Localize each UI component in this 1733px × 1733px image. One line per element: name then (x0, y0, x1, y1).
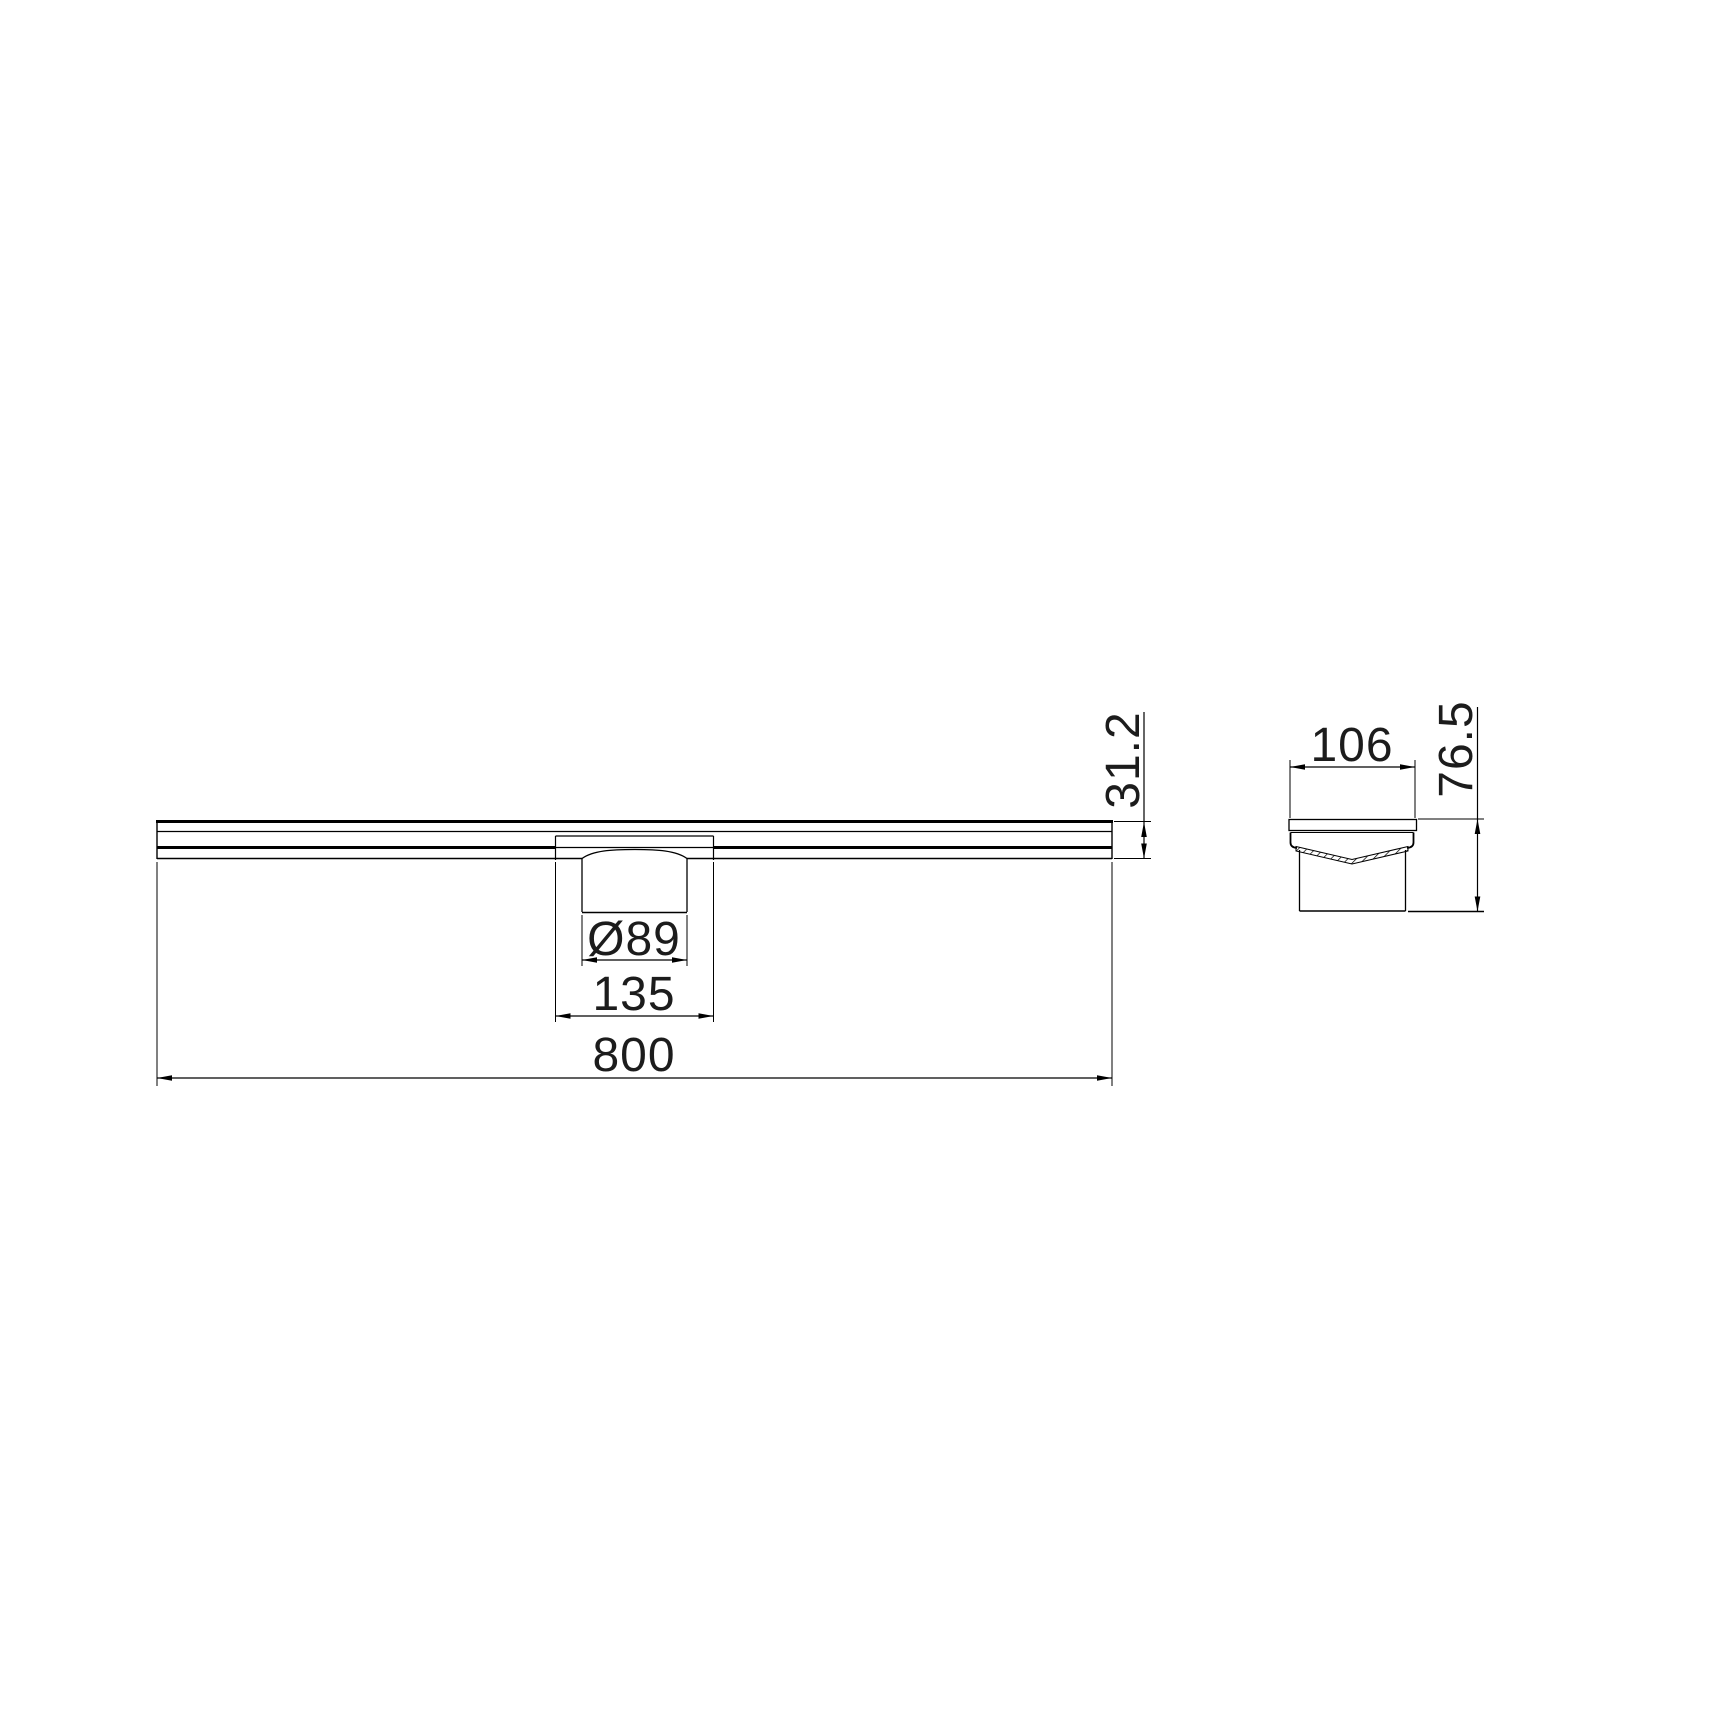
dimension-label-outlet-width: 135 (592, 968, 675, 1021)
dimension-label-outlet-diameter: Ø89 (587, 913, 681, 966)
drawing-background (0, 0, 1733, 1733)
dimension-outlet-diameter: Ø89 (582, 913, 687, 966)
technical-drawing: Ø89 135 800 31.2 (0, 0, 1733, 1733)
technical-drawing-canvas: Ø89 135 800 31.2 (0, 0, 1733, 1733)
dimension-label-overall-height: 76.5 (1430, 700, 1483, 797)
dimension-label-channel-width: 106 (1310, 719, 1393, 772)
dimension-label-body-height: 31.2 (1097, 711, 1150, 808)
dimension-label-overall-length: 800 (592, 1029, 675, 1082)
